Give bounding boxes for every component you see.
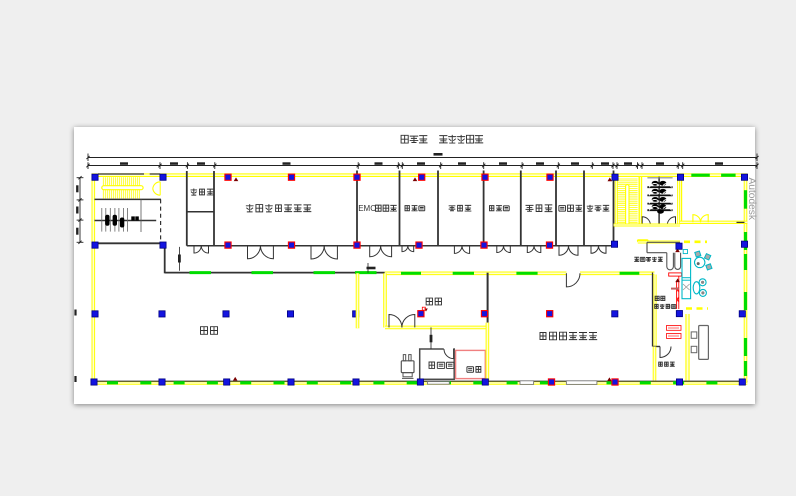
svg-text:EMC: EMC	[358, 204, 376, 213]
svg-text:Autodesk: Autodesk	[746, 178, 757, 221]
